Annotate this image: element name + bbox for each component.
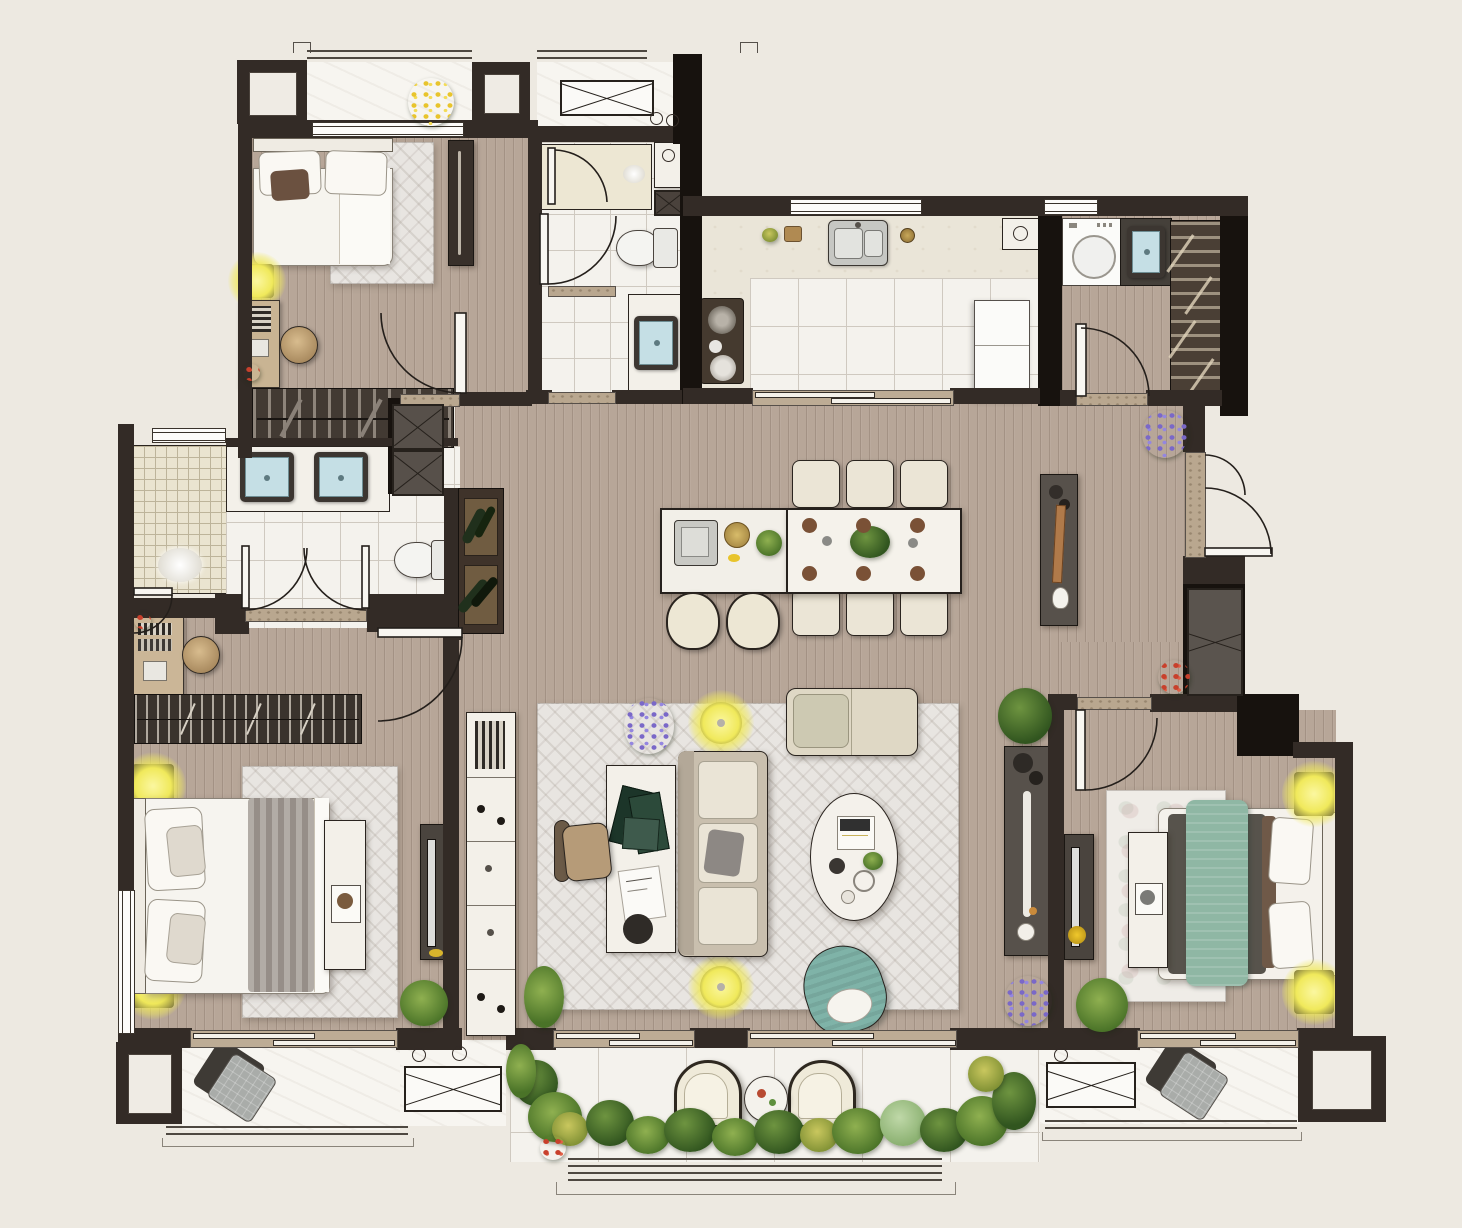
dining-chair[interactable]: [900, 460, 948, 508]
kitchen-sink: [828, 220, 888, 266]
dining-table: [786, 508, 962, 594]
kitchen-island: [660, 508, 792, 594]
master-bed: [132, 798, 328, 992]
pillar-inset: [128, 1054, 172, 1114]
coffee-table: [810, 793, 898, 921]
potted-plant: [400, 980, 448, 1026]
vanity-sink: [240, 452, 294, 502]
dining-chair[interactable]: [846, 460, 894, 508]
bath-threshold: [548, 392, 616, 404]
bar-stool[interactable]: [666, 592, 720, 650]
drain-circle: [650, 112, 663, 125]
floor-lamp: [700, 966, 742, 1008]
railing: [1045, 1120, 1297, 1133]
chaise-lounge[interactable]: [786, 688, 918, 756]
shower-head-icon: [623, 165, 645, 183]
living-sliding-window-right[interactable]: [747, 1030, 957, 1048]
dining-chair[interactable]: [846, 588, 894, 636]
shower: [540, 144, 652, 210]
bed-bench: [324, 820, 366, 970]
master-bedroom-window: [118, 890, 135, 1034]
towel-decor: [158, 548, 202, 582]
yellow-flowers: [1068, 926, 1086, 944]
striped-blanket: [248, 798, 314, 992]
counter-decor: [762, 228, 778, 242]
potted-plant-purple: [624, 698, 674, 754]
wall: [612, 390, 682, 404]
laundry-door-threshold: [1076, 393, 1148, 406]
wall: [1220, 216, 1248, 416]
tv-screen: [427, 839, 436, 947]
bathroom-sink: [634, 316, 678, 370]
vanity-sink: [314, 452, 368, 502]
cooktop: [700, 298, 744, 384]
balcony-railing: [568, 1158, 942, 1186]
cutting-board: [784, 226, 802, 242]
laundry-shelf: [1170, 220, 1222, 394]
dining-chair[interactable]: [792, 460, 840, 508]
floor-lamp: [1294, 772, 1334, 816]
drain-circle: [412, 1048, 426, 1062]
bedroom-1-bed: [253, 138, 391, 264]
kitchen-appliance: [1002, 218, 1040, 250]
wall: [1150, 694, 1250, 712]
bowl: [724, 522, 750, 548]
dining-chair[interactable]: [900, 588, 948, 636]
wall: [683, 388, 753, 404]
wall: [528, 126, 542, 400]
wall: [443, 628, 459, 1038]
potted-plant: [1076, 978, 1128, 1032]
table-sprig: [863, 852, 883, 870]
step-outline: [1042, 1132, 1302, 1141]
wall: [950, 388, 1040, 404]
living-sliding-window-left[interactable]: [553, 1030, 695, 1048]
storage-box: [392, 450, 444, 496]
kitchen-sliding-door[interactable]: [752, 390, 954, 406]
bedroom-2-door-threshold: [1077, 697, 1152, 710]
wall: [690, 1028, 750, 1048]
wall: [673, 54, 702, 144]
railing: [166, 1126, 408, 1139]
laundry-window: [1044, 199, 1098, 215]
kitchen-window: [790, 199, 922, 215]
window: [152, 428, 226, 443]
potted-plant-purple: [1142, 410, 1188, 458]
drain-circle: [1054, 1048, 1068, 1062]
wall: [1038, 216, 1062, 406]
hallway-bookcase: [466, 712, 516, 1036]
step-outline: [740, 42, 758, 53]
entry-door-threshold: [1185, 452, 1206, 558]
wine-rack: [458, 488, 504, 634]
table-centerpiece-plant: [850, 526, 890, 558]
pillar-inset: [249, 72, 297, 116]
master-bedroom-sliding-window[interactable]: [190, 1030, 398, 1048]
master-bookshelf: [134, 694, 362, 744]
bedroom-1-cabinet: [448, 140, 474, 266]
small-plant-icon: [243, 364, 260, 381]
bar-stool[interactable]: [726, 592, 780, 650]
wall: [680, 126, 702, 404]
sofa[interactable]: [678, 751, 766, 955]
washing-machine: [1062, 218, 1122, 286]
pillow-decor: [1148, 1042, 1220, 1114]
wall: [1183, 556, 1245, 586]
wall: [460, 392, 532, 406]
potted-plant: [998, 688, 1052, 744]
ac-unit-top: [560, 80, 654, 116]
pillar-inset: [484, 74, 520, 114]
drain-circle: [452, 1046, 467, 1061]
ac-unit-left: [404, 1066, 502, 1112]
headboard: [253, 138, 393, 152]
railing: [537, 50, 647, 64]
media-console: [1004, 746, 1052, 956]
storage-box: [392, 404, 444, 450]
wall: [950, 1028, 1062, 1050]
drain-circle: [666, 114, 679, 127]
wall: [1048, 694, 1064, 1040]
potted-plant-red: [1158, 660, 1190, 694]
vanity-stool[interactable]: [182, 636, 220, 674]
toilet: [616, 226, 678, 268]
potted-plant-yellow: [408, 78, 454, 126]
floor-lamp: [1294, 970, 1334, 1014]
bath-threshold: [548, 286, 616, 297]
floor-plan: [0, 0, 1462, 1228]
wall: [1055, 694, 1077, 710]
throw-pillow: [703, 829, 745, 878]
master-bath-threshold: [245, 608, 367, 622]
wall: [683, 196, 1248, 216]
bowl-greens: [756, 530, 782, 556]
pillow-decor: [196, 1044, 272, 1120]
wall: [215, 594, 249, 634]
wall: [118, 424, 134, 640]
accent-pillow: [270, 169, 310, 202]
potted-plant: [524, 966, 564, 1028]
bedroom-2-bed: [1158, 806, 1342, 980]
jar: [900, 228, 915, 243]
desk-chair[interactable]: [280, 326, 318, 364]
desk-lamp-icon: [623, 914, 653, 944]
potted-plant-purple: [1004, 976, 1052, 1026]
wall: [238, 138, 252, 458]
entry-shoe-cabinet: [1187, 588, 1243, 696]
bath-niche: [654, 142, 682, 188]
decor-console: [1040, 474, 1078, 626]
wall: [1335, 742, 1353, 1042]
step-outline: [162, 1138, 414, 1147]
living-desk: [606, 765, 676, 953]
bedroom-2-sliding-window[interactable]: [1137, 1030, 1299, 1048]
office-chair[interactable]: [554, 816, 612, 886]
laundry-sink-unit: [1120, 218, 1172, 286]
green-runner: [1186, 800, 1248, 986]
wall: [1146, 390, 1222, 406]
ac-unit-right: [1046, 1062, 1136, 1108]
window: [312, 122, 464, 137]
small-plant-icon: [134, 612, 151, 629]
railing: [307, 50, 472, 64]
floor-lamp: [700, 702, 742, 744]
dining-chair[interactable]: [792, 588, 840, 636]
fridge: [974, 300, 1030, 400]
soundbar: [1023, 791, 1031, 917]
wall: [1237, 694, 1299, 756]
bed-bench: [1128, 832, 1168, 968]
pillar-inset: [1312, 1050, 1372, 1110]
